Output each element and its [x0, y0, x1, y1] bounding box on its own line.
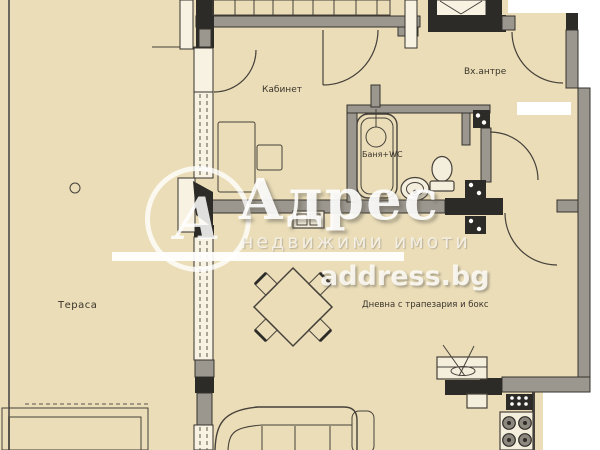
elevator-shaft — [428, 0, 515, 32]
floor-plan-drawing — [0, 0, 600, 450]
outside-bottom-right — [543, 392, 600, 450]
chair — [255, 273, 278, 296]
chair — [255, 319, 278, 342]
sofa-armrest — [352, 411, 374, 450]
window-bottom — [194, 425, 213, 450]
office-side-table — [257, 145, 282, 170]
sofa — [215, 407, 374, 450]
terrace-edge — [8, 0, 10, 450]
terrace-door-opening — [194, 48, 213, 92]
wall-main-black-section — [445, 198, 503, 215]
wall-hall-left — [481, 128, 491, 182]
room-label-bathroom: Баня+WC — [362, 150, 403, 159]
door-arc-office — [323, 30, 378, 85]
terrace-structure — [2, 0, 196, 450]
wall-main-horizontal — [212, 200, 445, 213]
column-icon — [465, 180, 486, 198]
doors — [214, 30, 563, 265]
door-arc-office-terrace — [214, 50, 256, 92]
outside-top-right — [578, 0, 600, 88]
wall-window-junction — [194, 225, 214, 237]
terrace-column-icon — [70, 183, 80, 193]
room-label-terrace: Тераса — [58, 300, 97, 311]
window-upper — [194, 92, 213, 178]
door-arc-entrance — [512, 32, 563, 83]
terrace-door-leaf — [193, 181, 213, 228]
wall-window-top-inner — [199, 29, 211, 47]
room-label-entry: Вх.антре — [464, 67, 506, 77]
wardrobe — [213, 0, 390, 15]
kitchen — [437, 345, 533, 450]
wall-bath-right — [462, 113, 470, 145]
walls — [194, 0, 590, 450]
wall-bottom-right — [502, 377, 590, 392]
terrace-planter — [2, 408, 148, 450]
wall-top — [196, 16, 420, 27]
room-label-office: Кабинет — [262, 85, 302, 95]
wall-kitchen-black — [445, 380, 502, 395]
floor-plan: Тераса Кабинет Вх.антре Баня+WC Дневна с… — [0, 0, 600, 450]
wall-right-upper — [566, 30, 578, 88]
terrace-door-frame — [178, 178, 195, 232]
wall-bath-top — [347, 105, 490, 113]
wall-shelf — [293, 211, 324, 228]
wall-right-cap — [566, 13, 578, 30]
dining-set — [254, 268, 332, 346]
column-icon — [465, 216, 486, 234]
column-icon — [473, 110, 490, 128]
wall-bath-stub — [371, 85, 380, 107]
door-arc-bathroom — [490, 132, 538, 180]
door-arc-living — [505, 213, 557, 265]
chair — [309, 319, 332, 342]
chair — [309, 273, 332, 296]
wall-stub-right — [557, 200, 578, 212]
office-desk — [218, 122, 255, 192]
kitchen-cabinet — [467, 394, 487, 408]
terrace-planter-inner — [9, 417, 141, 450]
kitchen-counter-panel — [506, 394, 533, 410]
washbasin — [401, 178, 429, 201]
outside-right-strip — [590, 88, 600, 392]
wall-right-main — [578, 88, 590, 377]
stove — [500, 412, 533, 450]
kitchen-sink — [437, 345, 487, 379]
office-furniture — [218, 122, 282, 192]
window-lower — [194, 237, 213, 360]
room-label-living: Дневна с трапезария и бокс — [362, 300, 489, 310]
wall-window-block1 — [195, 360, 214, 377]
wall-channel-left — [180, 0, 193, 49]
wall-bath-left — [347, 105, 357, 202]
wall-window-block2 — [195, 377, 214, 393]
wall-channel-right — [405, 0, 417, 48]
toilet — [430, 157, 454, 192]
dining-table — [254, 268, 332, 346]
erased-label-patch — [517, 102, 571, 115]
wall-window-block3 — [197, 393, 212, 425]
